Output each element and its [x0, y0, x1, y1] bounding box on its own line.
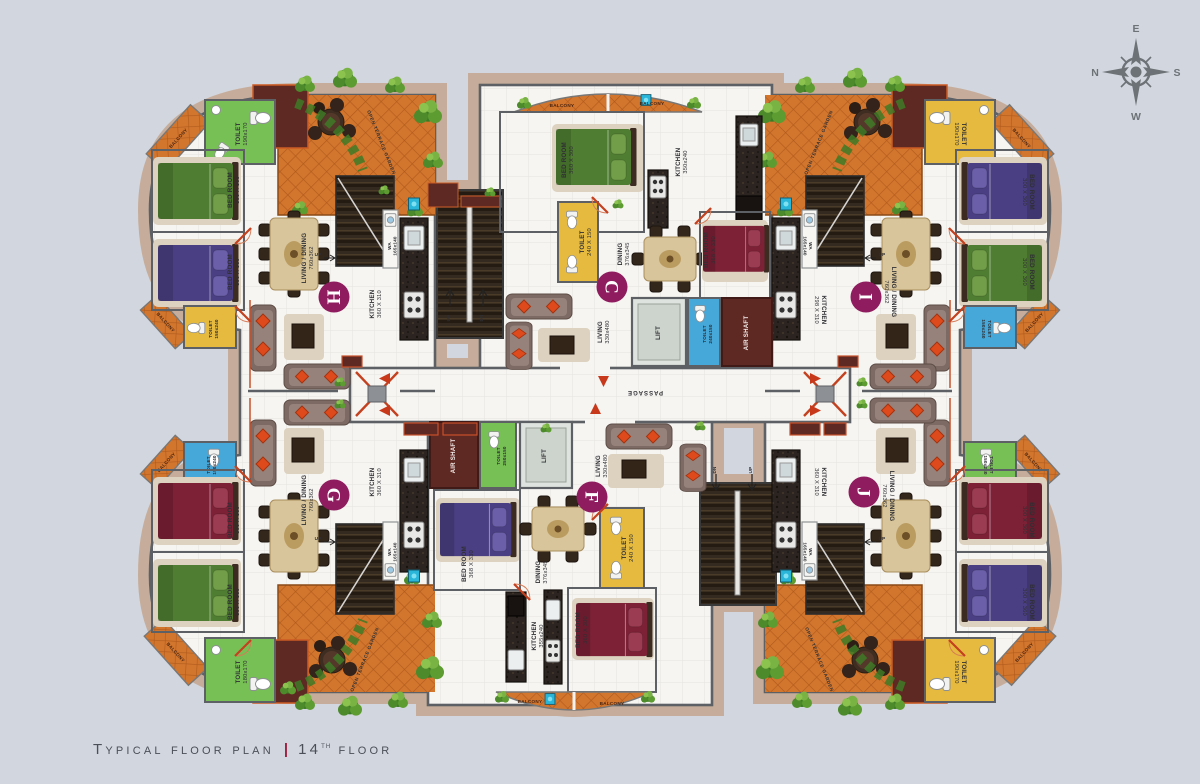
unit-c-letter: C [601, 280, 622, 294]
living-c-opening [560, 364, 610, 376]
g-bedroom1-label: BED ROOM [227, 502, 234, 538]
g-up-label: UP [315, 536, 322, 541]
stair-dn-label: DN [479, 314, 484, 322]
h-wa-dim: 165x140 [393, 236, 398, 256]
j-sofa-2 [870, 398, 936, 423]
j-wa-label: WA [808, 548, 813, 556]
i-toilet-top-label: TOILET [960, 122, 967, 145]
c-bedroom1-label: BED ROOM [561, 142, 568, 178]
f-dining-label: DINING [535, 561, 542, 584]
f-balcony1-label: BALCONY [518, 699, 543, 704]
j-toilet-bottom-label: TOILET [960, 660, 967, 683]
g-wa-dim: 165x140 [393, 542, 398, 562]
j-kitchen-label: KITCHEN [820, 468, 827, 497]
j-sofa-1 [924, 420, 950, 486]
j-toilet-top-dim: 150x240 [983, 455, 988, 475]
plan-title-main: Typical floor plan [93, 741, 274, 758]
c-kitchen-dim: 350x240 [683, 150, 689, 173]
c-sofa-2 [506, 322, 532, 370]
i-sofa-1 [924, 305, 950, 371]
core-top: LIFT TOILET 240x150 AIR SHAFT [632, 298, 772, 366]
i-up-label: UP [879, 252, 886, 257]
unit-j-letter: J [853, 487, 874, 497]
passage-label: PASSAGE [627, 389, 663, 395]
g-kitchen-dim: 360 X 310 [377, 468, 383, 496]
j-toilet-bottom-dim: 190x170 [953, 660, 959, 683]
f-living-label: LIVING [595, 455, 602, 477]
unit-g-letter: G [323, 488, 344, 503]
j-toilet-top-label: TOILET [989, 456, 994, 473]
h-kitchen-label: KITCHEN [369, 289, 376, 318]
g-toilet-bottom-label: TOILET [235, 660, 242, 683]
c-sofa-1 [506, 294, 572, 319]
stair-tower-topleft: UP DN [428, 183, 503, 338]
h-up-label: UP [315, 252, 322, 257]
unit-h-badge: H [319, 282, 350, 313]
j-bedroom2-dim: 300 X 360 [1021, 588, 1027, 616]
i-wa-label: WA [808, 242, 813, 250]
c-bedroom2-label: BED ROOM [703, 232, 710, 268]
j-kitchen-dim: 360 X 310 [813, 468, 819, 496]
c-kitchen-label: KITCHEN [675, 147, 682, 176]
f-sofa-1 [606, 424, 672, 449]
i-living-label: LIVING / DINING [890, 267, 897, 317]
stair2-dn-label: DN [712, 466, 717, 474]
i-toilet-bottom-dim: 150x240 [981, 319, 986, 339]
c-dining-label: DINING [617, 243, 624, 266]
i-bedroom2-dim: 300 X 360 [1021, 258, 1027, 286]
g-living-label: LIVING / DINING [301, 475, 308, 525]
h-wa-label: WA [387, 242, 392, 250]
unit-j-badge: J [849, 477, 880, 508]
h-bedroom1-label: BED ROOM [227, 172, 234, 208]
f-living-dim: 330x480 [603, 454, 609, 477]
stair-up-label: UP [446, 315, 451, 322]
f-bedroom1-label: BED ROOM [461, 546, 468, 582]
h-coffee-table [292, 324, 314, 348]
compass-icon: E S W N [1091, 23, 1180, 123]
plan-title-floor: 14th floor [298, 741, 392, 758]
h-toilet-bottom-label: TOILET [208, 320, 213, 337]
j-coffee-table [886, 438, 908, 462]
lift-bottom-label: LIFT [541, 449, 548, 463]
unit-i-letter: I [855, 293, 876, 300]
stair-tower-bottomright: DN UP [700, 466, 776, 605]
unit-c-badge: C [597, 272, 628, 303]
h-living-label: LIVING / DINING [301, 233, 308, 283]
j-living-dim: 760x362 [881, 484, 887, 507]
g-living-dim: 760x362 [309, 488, 315, 511]
g-bedroom2-label: BED ROOM [227, 584, 234, 620]
h-bedroom1-dim: 300 X 360 [235, 176, 241, 204]
f-media-table [622, 460, 646, 478]
i-kitchen-label: KITCHEN [820, 296, 827, 325]
g-sofa-1 [250, 420, 276, 486]
g-coffee-table [292, 438, 314, 462]
f-dining-dim: 376x345 [543, 560, 549, 583]
f-toilet-dim: 240 X 150 [629, 534, 635, 562]
passage-gap-left [428, 370, 442, 420]
i-bedroom1-dim: 300 X 360 [1021, 178, 1027, 206]
unit-g-badge: G [319, 480, 350, 511]
compass-east: E [1132, 23, 1139, 35]
compass-south: S [1173, 67, 1180, 79]
h-toilet-top-label: TOILET [235, 122, 242, 145]
h-bedroom2-dim: 300 X 360 [235, 258, 241, 286]
core-toilet-bottom-label: TOILET [496, 447, 501, 464]
plan-title: Typical floor plan|14th floor [93, 741, 392, 758]
g-toilet-top-dim: 150x240 [212, 455, 217, 475]
i-kitchen-dim: 298 X 310 [813, 296, 819, 324]
g-toilet-bottom-dim: 180x170 [243, 660, 249, 683]
f-balcony2-label: BALCONY [600, 701, 625, 706]
core-toilet-top-label: TOILET [702, 325, 707, 342]
i-coffee-table [886, 324, 908, 348]
unit-f-letter: F [581, 491, 602, 503]
compass-west: W [1131, 111, 1141, 123]
j-bedroom1-dim: 300 X 360 [1021, 506, 1027, 534]
air-shaft-bottom-label: AIR SHAFT [450, 439, 457, 474]
f-bedroom1-dim: 368 X 330 [469, 550, 475, 578]
j-up-label: UP [879, 536, 886, 541]
unit-h-letter: H [323, 290, 344, 305]
j-bedroom2-label: BED ROOM [1028, 584, 1035, 620]
c-living-dim: 330x480 [605, 320, 611, 343]
c-bedroom2-dim: 368 X 330 [711, 236, 717, 264]
f-kitchen-label: KITCHEN [531, 621, 538, 650]
lift-top-label: LIFT [655, 326, 662, 340]
unit-i-badge: I [851, 282, 882, 313]
c-balcony2-label: BALCONY [640, 101, 665, 106]
i-wa-dim: 165x140 [803, 236, 808, 256]
g-wa-label: WA [387, 548, 392, 556]
h-bedroom2-label: BED ROOM [227, 254, 234, 290]
f-toilet-label: TOILET [621, 536, 628, 559]
i-toilet-top-dim: 190x170 [953, 122, 959, 145]
g-toilet-top-label: TOILET [206, 456, 211, 473]
i-toilet-bottom-label: TOILET [987, 320, 992, 337]
h-kitchen-dim: 360 X 310 [377, 290, 383, 318]
c-living-label: LIVING [597, 321, 604, 343]
c-dining-dim: 376x345 [625, 242, 631, 265]
i-bedroom2-label: BED ROOM [1028, 254, 1035, 290]
passage-gap-right [758, 370, 772, 420]
i-sofa-2 [870, 364, 936, 389]
air-shaft-top-label: AIR SHAFT [743, 316, 750, 351]
c-toilet-label: TOILET [579, 230, 586, 253]
unit-f-badge: F [577, 482, 608, 513]
passage-door-right-post [816, 386, 834, 402]
c-toilet-dim: 240 X 150 [587, 228, 593, 256]
f-sofa-2 [680, 444, 706, 492]
floor-plan-svg: UP DN DN UP BALCONY BALCONY TOILET 190x1… [0, 0, 1200, 784]
h-sofa-1 [250, 305, 276, 371]
c-media-table [550, 336, 574, 354]
h-toilet-top-dim: 190x170 [243, 122, 249, 145]
floor-plan-page: UP DN DN UP BALCONY BALCONY TOILET 190x1… [0, 0, 1200, 784]
core-toilet-top-dim: 240x150 [708, 324, 713, 344]
title-separator: | [284, 741, 288, 758]
g-bedroom2-dim: 300 X 360 [235, 588, 241, 616]
i-bedroom1-label: BED ROOM [1028, 174, 1035, 210]
f-bedroom2-label: BED ROOM [575, 612, 582, 648]
h-living-dim: 760x362 [309, 246, 315, 269]
g-bedroom1-dim: 300 X 360 [235, 506, 241, 534]
j-wa-dim: 165x140 [803, 542, 808, 562]
core-toilet-bottom-dim: 250x150 [502, 446, 507, 466]
c-bedroom1-dim: 360 X 300 [569, 146, 575, 174]
stair2-up-label: UP [748, 467, 753, 474]
c-balcony1-label: BALCONY [550, 103, 575, 108]
f-bedroom2-dim: 360 X 300 [583, 616, 589, 644]
i-living-dim: 760x362 [883, 280, 889, 303]
h-toilet-bottom-dim: 150x240 [214, 319, 219, 339]
g-kitchen-label: KITCHEN [369, 467, 376, 496]
f-kitchen-dim: 355x240 [539, 624, 545, 647]
passage-door-left-post [368, 386, 386, 402]
j-bedroom1-label: BED ROOM [1028, 502, 1035, 538]
compass-north: N [1091, 67, 1099, 79]
j-living-label: LIVING / DINING [888, 471, 895, 521]
f-bed1 [440, 502, 516, 557]
